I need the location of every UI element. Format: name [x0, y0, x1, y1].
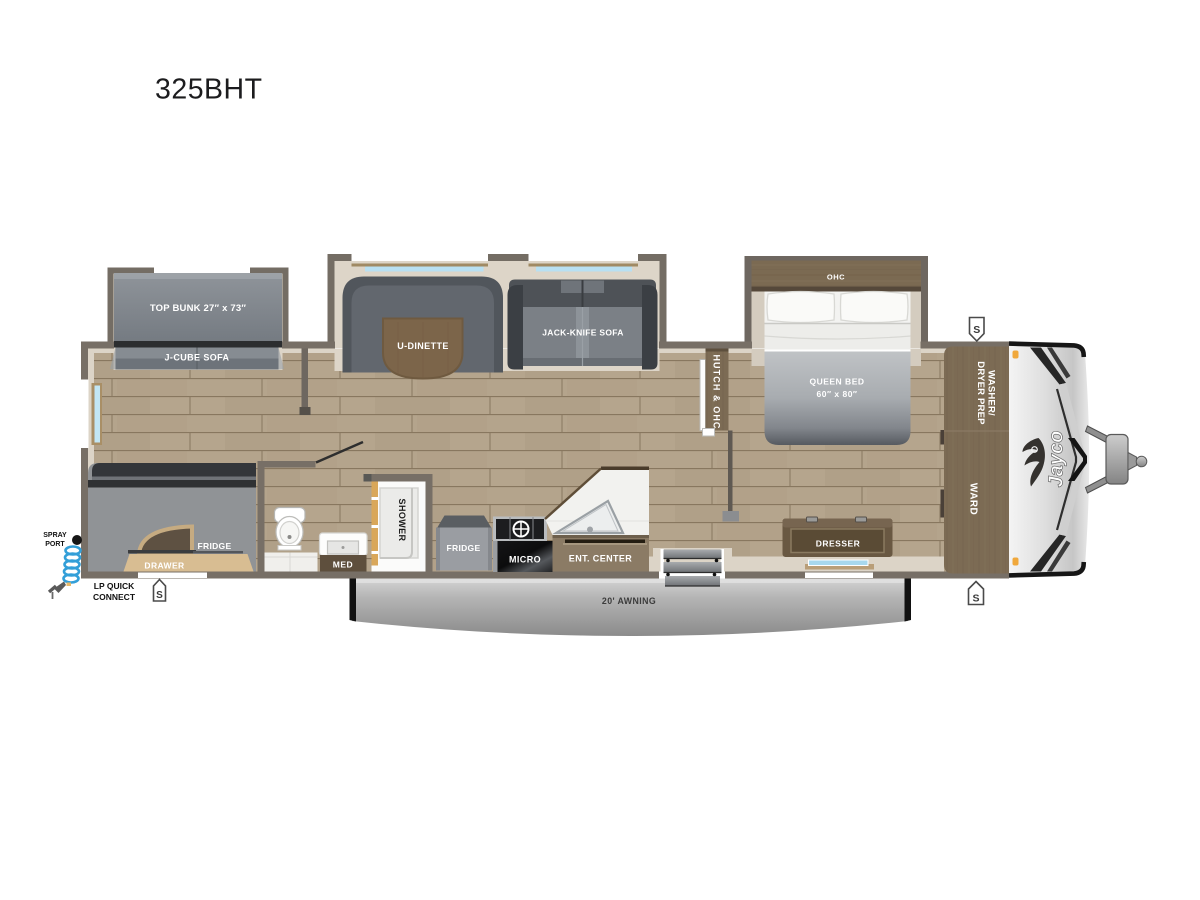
svg-text:FRIDGE: FRIDGE: [447, 543, 481, 553]
svg-text:JACK-KNIFE SOFA: JACK-KNIFE SOFA: [542, 328, 623, 338]
svg-text:DRAWER: DRAWER: [144, 561, 184, 571]
svg-text:DRYER PREP: DRYER PREP: [975, 361, 986, 425]
svg-text:WASHER/: WASHER/: [986, 370, 997, 416]
svg-text:U-DINETTE: U-DINETTE: [397, 341, 449, 351]
svg-text:S: S: [156, 590, 163, 601]
svg-text:MICRO: MICRO: [509, 555, 541, 565]
svg-text:FRIDGE: FRIDGE: [198, 541, 232, 551]
svg-text:ENT. CENTER: ENT. CENTER: [569, 554, 633, 564]
svg-text:HUTCH & OHC: HUTCH & OHC: [712, 354, 722, 429]
svg-text:SPRAY: SPRAY: [43, 532, 67, 539]
svg-text:WARD: WARD: [968, 483, 979, 515]
svg-text:S: S: [972, 593, 979, 605]
svg-text:Jayco: Jayco: [1046, 431, 1068, 488]
svg-text:QUEEN BED: QUEEN BED: [809, 377, 864, 387]
svg-text:MED: MED: [333, 560, 353, 570]
svg-text:LP QUICK: LP QUICK: [94, 581, 135, 591]
svg-text:20' AWNING: 20' AWNING: [602, 596, 656, 606]
svg-text:J-CUBE SOFA: J-CUBE SOFA: [165, 353, 230, 363]
svg-text:DRESSER: DRESSER: [816, 539, 861, 549]
svg-text:S: S: [973, 324, 980, 336]
svg-text:CONNECT: CONNECT: [93, 592, 136, 602]
svg-text:325BHT: 325BHT: [155, 74, 263, 106]
svg-text:TOP BUNK 27″ x 73″: TOP BUNK 27″ x 73″: [150, 303, 247, 314]
svg-text:60″ x 80″: 60″ x 80″: [816, 389, 857, 399]
svg-text:OHC: OHC: [827, 273, 845, 282]
svg-text:PORT: PORT: [45, 541, 65, 548]
svg-text:SHOWER: SHOWER: [397, 499, 407, 542]
